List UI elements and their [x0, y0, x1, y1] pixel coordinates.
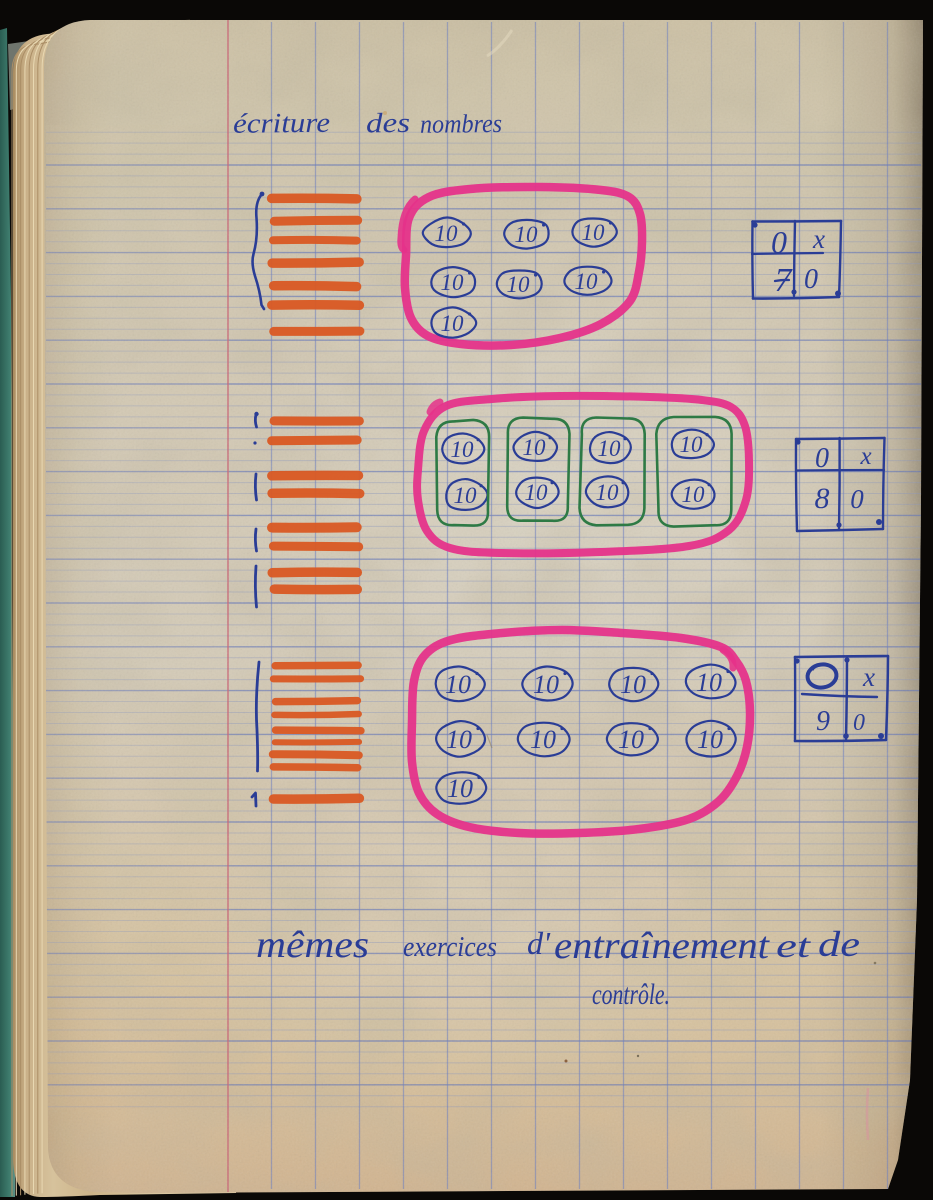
svg-text:d': d' — [527, 925, 551, 961]
svg-text:0: 0 — [853, 710, 865, 736]
svg-text:x: x — [812, 224, 825, 254]
svg-text:et: et — [776, 928, 812, 965]
svg-text:10: 10 — [596, 480, 620, 505]
svg-text:0: 0 — [815, 443, 829, 474]
svg-text:10: 10 — [680, 432, 704, 457]
svg-text:10: 10 — [435, 221, 459, 246]
svg-text:mêmes: mêmes — [256, 924, 369, 966]
svg-text:10: 10 — [697, 725, 723, 754]
svg-text:entraînement: entraînement — [554, 925, 771, 967]
svg-text:10: 10 — [575, 269, 599, 294]
svg-text:10: 10 — [451, 437, 475, 462]
svg-text:10: 10 — [441, 311, 465, 336]
svg-text:10: 10 — [445, 670, 471, 699]
svg-text:nombres: nombres — [420, 109, 502, 139]
svg-text:10: 10 — [620, 670, 646, 699]
svg-text:de: de — [818, 924, 860, 964]
svg-text:10: 10 — [507, 272, 531, 297]
svg-text:10: 10 — [515, 222, 539, 247]
svg-text:10: 10 — [523, 435, 547, 460]
svg-text:10: 10 — [618, 725, 644, 754]
svg-text:écriture: écriture — [233, 108, 330, 140]
svg-text:10: 10 — [530, 725, 556, 754]
svg-text:x: x — [859, 443, 871, 470]
svg-text:8: 8 — [815, 482, 830, 515]
svg-text:10: 10 — [582, 220, 606, 245]
svg-text:des: des — [366, 108, 410, 139]
svg-text:exercices: exercices — [403, 932, 497, 963]
svg-text:10: 10 — [696, 668, 722, 697]
svg-text:10: 10 — [533, 670, 559, 699]
svg-text:10: 10 — [682, 482, 706, 507]
svg-text:10: 10 — [446, 725, 472, 754]
svg-text:0: 0 — [850, 484, 864, 514]
svg-text:10: 10 — [441, 270, 465, 295]
svg-text:x: x — [862, 662, 875, 692]
svg-text:10: 10 — [598, 436, 622, 461]
svg-text:9: 9 — [816, 706, 830, 737]
svg-text:10: 10 — [447, 774, 473, 803]
svg-text:0: 0 — [771, 224, 787, 260]
svg-text:0: 0 — [804, 264, 818, 295]
svg-text:10: 10 — [454, 483, 478, 508]
svg-text:10: 10 — [525, 480, 549, 505]
svg-text:contrôle.: contrôle. — [592, 978, 670, 1011]
